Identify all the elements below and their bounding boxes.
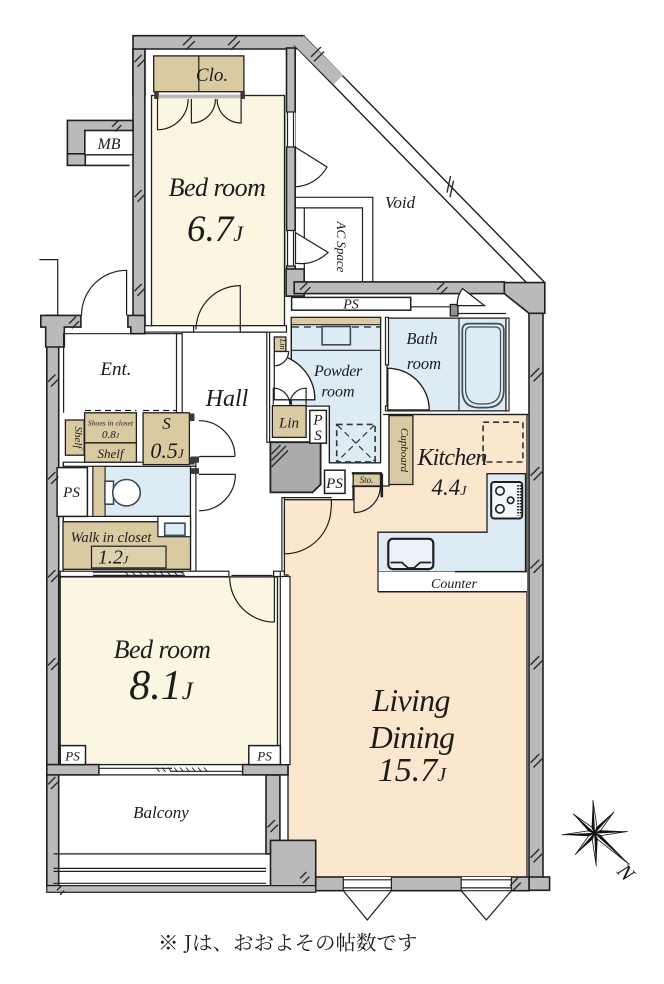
svg-text:Balcony: Balcony bbox=[133, 803, 189, 822]
svg-text:Bed room: Bed room bbox=[169, 173, 266, 202]
svg-text:Shelf: Shelf bbox=[72, 427, 84, 451]
svg-text:MB: MB bbox=[96, 136, 120, 153]
svg-text:Void: Void bbox=[385, 193, 416, 212]
svg-text:Shoes in closet: Shoes in closet bbox=[88, 419, 134, 428]
svg-text:Hall: Hall bbox=[205, 386, 249, 412]
svg-text:Walk in closet: Walk in closet bbox=[71, 530, 153, 546]
svg-text:Shelf: Shelf bbox=[98, 446, 126, 461]
svg-text:15.7J: 15.7J bbox=[378, 752, 448, 789]
svg-text:S: S bbox=[314, 428, 322, 444]
svg-text:Clo.: Clo. bbox=[196, 65, 228, 86]
svg-text:Powder: Powder bbox=[313, 363, 363, 380]
svg-text:PS: PS bbox=[342, 297, 359, 312]
svg-text:Lin: Lin bbox=[278, 416, 299, 432]
svg-text:room: room bbox=[407, 354, 441, 373]
svg-text:Dining: Dining bbox=[369, 719, 455, 755]
svg-text:Cupboard: Cupboard bbox=[398, 428, 410, 473]
svg-text:Bath: Bath bbox=[406, 329, 437, 348]
svg-text:Sto.: Sto. bbox=[360, 475, 374, 485]
svg-text:PS: PS bbox=[325, 476, 343, 492]
svg-text:Living: Living bbox=[371, 682, 450, 718]
svg-text:S: S bbox=[162, 414, 171, 433]
svg-text:Bed room: Bed room bbox=[114, 635, 211, 664]
svg-text:PS: PS bbox=[64, 749, 80, 764]
svg-text:0.8J: 0.8J bbox=[102, 429, 120, 441]
svg-text:Lin: Lin bbox=[278, 338, 287, 350]
svg-text:Counter: Counter bbox=[431, 577, 477, 592]
svg-text:PS: PS bbox=[62, 485, 80, 501]
svg-text:Ent.: Ent. bbox=[99, 359, 131, 380]
svg-text:PS: PS bbox=[256, 749, 272, 764]
svg-text:room: room bbox=[321, 384, 354, 401]
svg-text:P: P bbox=[312, 413, 322, 429]
svg-text:AC Space: AC Space bbox=[334, 221, 349, 273]
svg-text:Kitchen: Kitchen bbox=[416, 445, 486, 471]
